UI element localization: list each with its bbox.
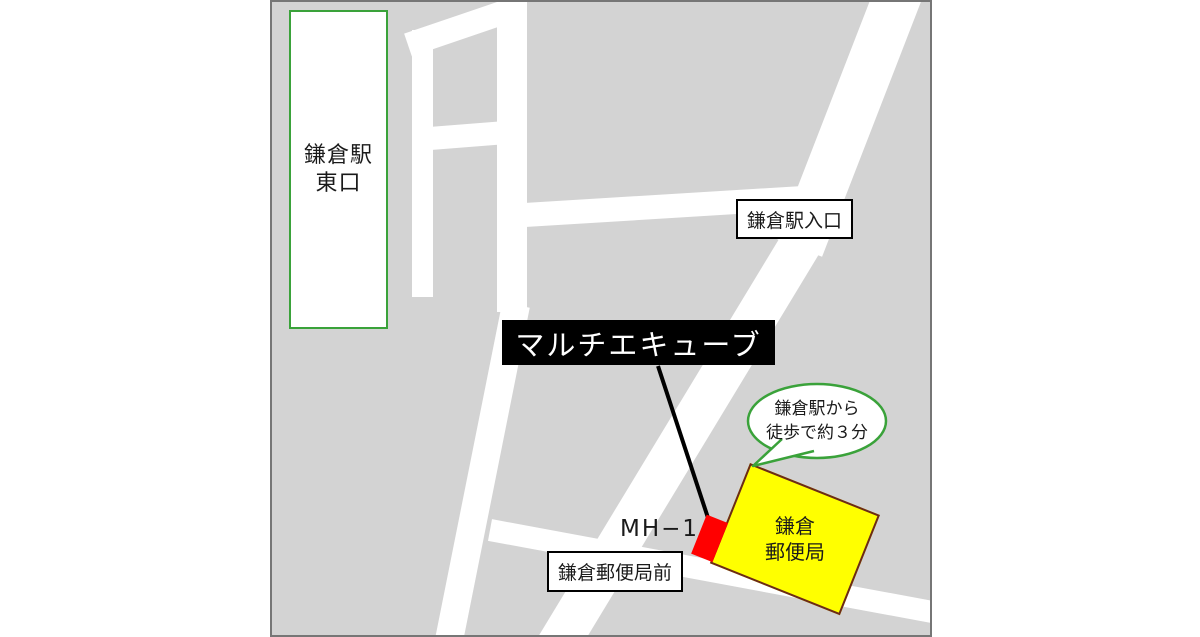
destination-label-box: マルチエキューブ: [502, 320, 775, 365]
road-station-grid-top: [404, 0, 509, 56]
post-office-label: 鎌倉 郵便局: [765, 513, 825, 565]
bus-stop-label-box: 鎌倉郵便局前: [547, 551, 683, 592]
road-station-grid-left: [412, 30, 433, 297]
road-station-grid-right: [497, 0, 527, 312]
station-building: 鎌倉駅 東口: [289, 10, 388, 329]
map-canvas: 鎌倉駅 東口 鎌倉 郵便局 鎌倉駅から 徒歩で約３分 マルチエキューブ 鎌倉駅入…: [270, 0, 932, 637]
entrance-label-box: 鎌倉駅入口: [736, 199, 853, 239]
marker-label: MH−1: [620, 516, 698, 542]
bubble-label: 鎌倉駅から 徒歩で約３分: [747, 398, 887, 446]
station-label: 鎌倉駅 東口: [304, 142, 373, 197]
access-map-page: 鎌倉駅 東口 鎌倉 郵便局 鎌倉駅から 徒歩で約３分 マルチエキューブ 鎌倉駅入…: [0, 0, 1200, 637]
